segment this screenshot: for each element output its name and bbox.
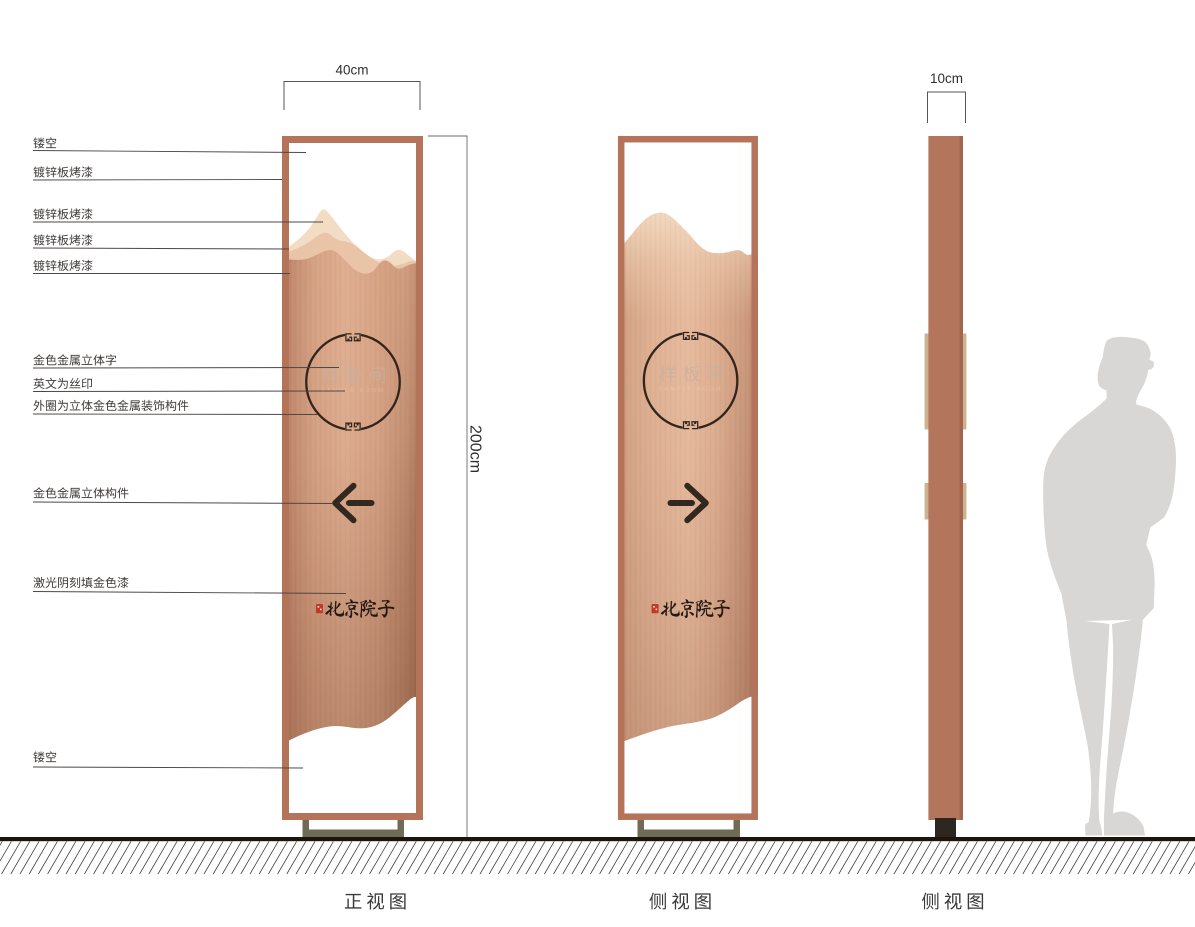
svg-text:40cm: 40cm [335, 63, 368, 78]
svg-text:200cm: 200cm [467, 425, 484, 473]
svg-text:10cm: 10cm [930, 71, 963, 86]
